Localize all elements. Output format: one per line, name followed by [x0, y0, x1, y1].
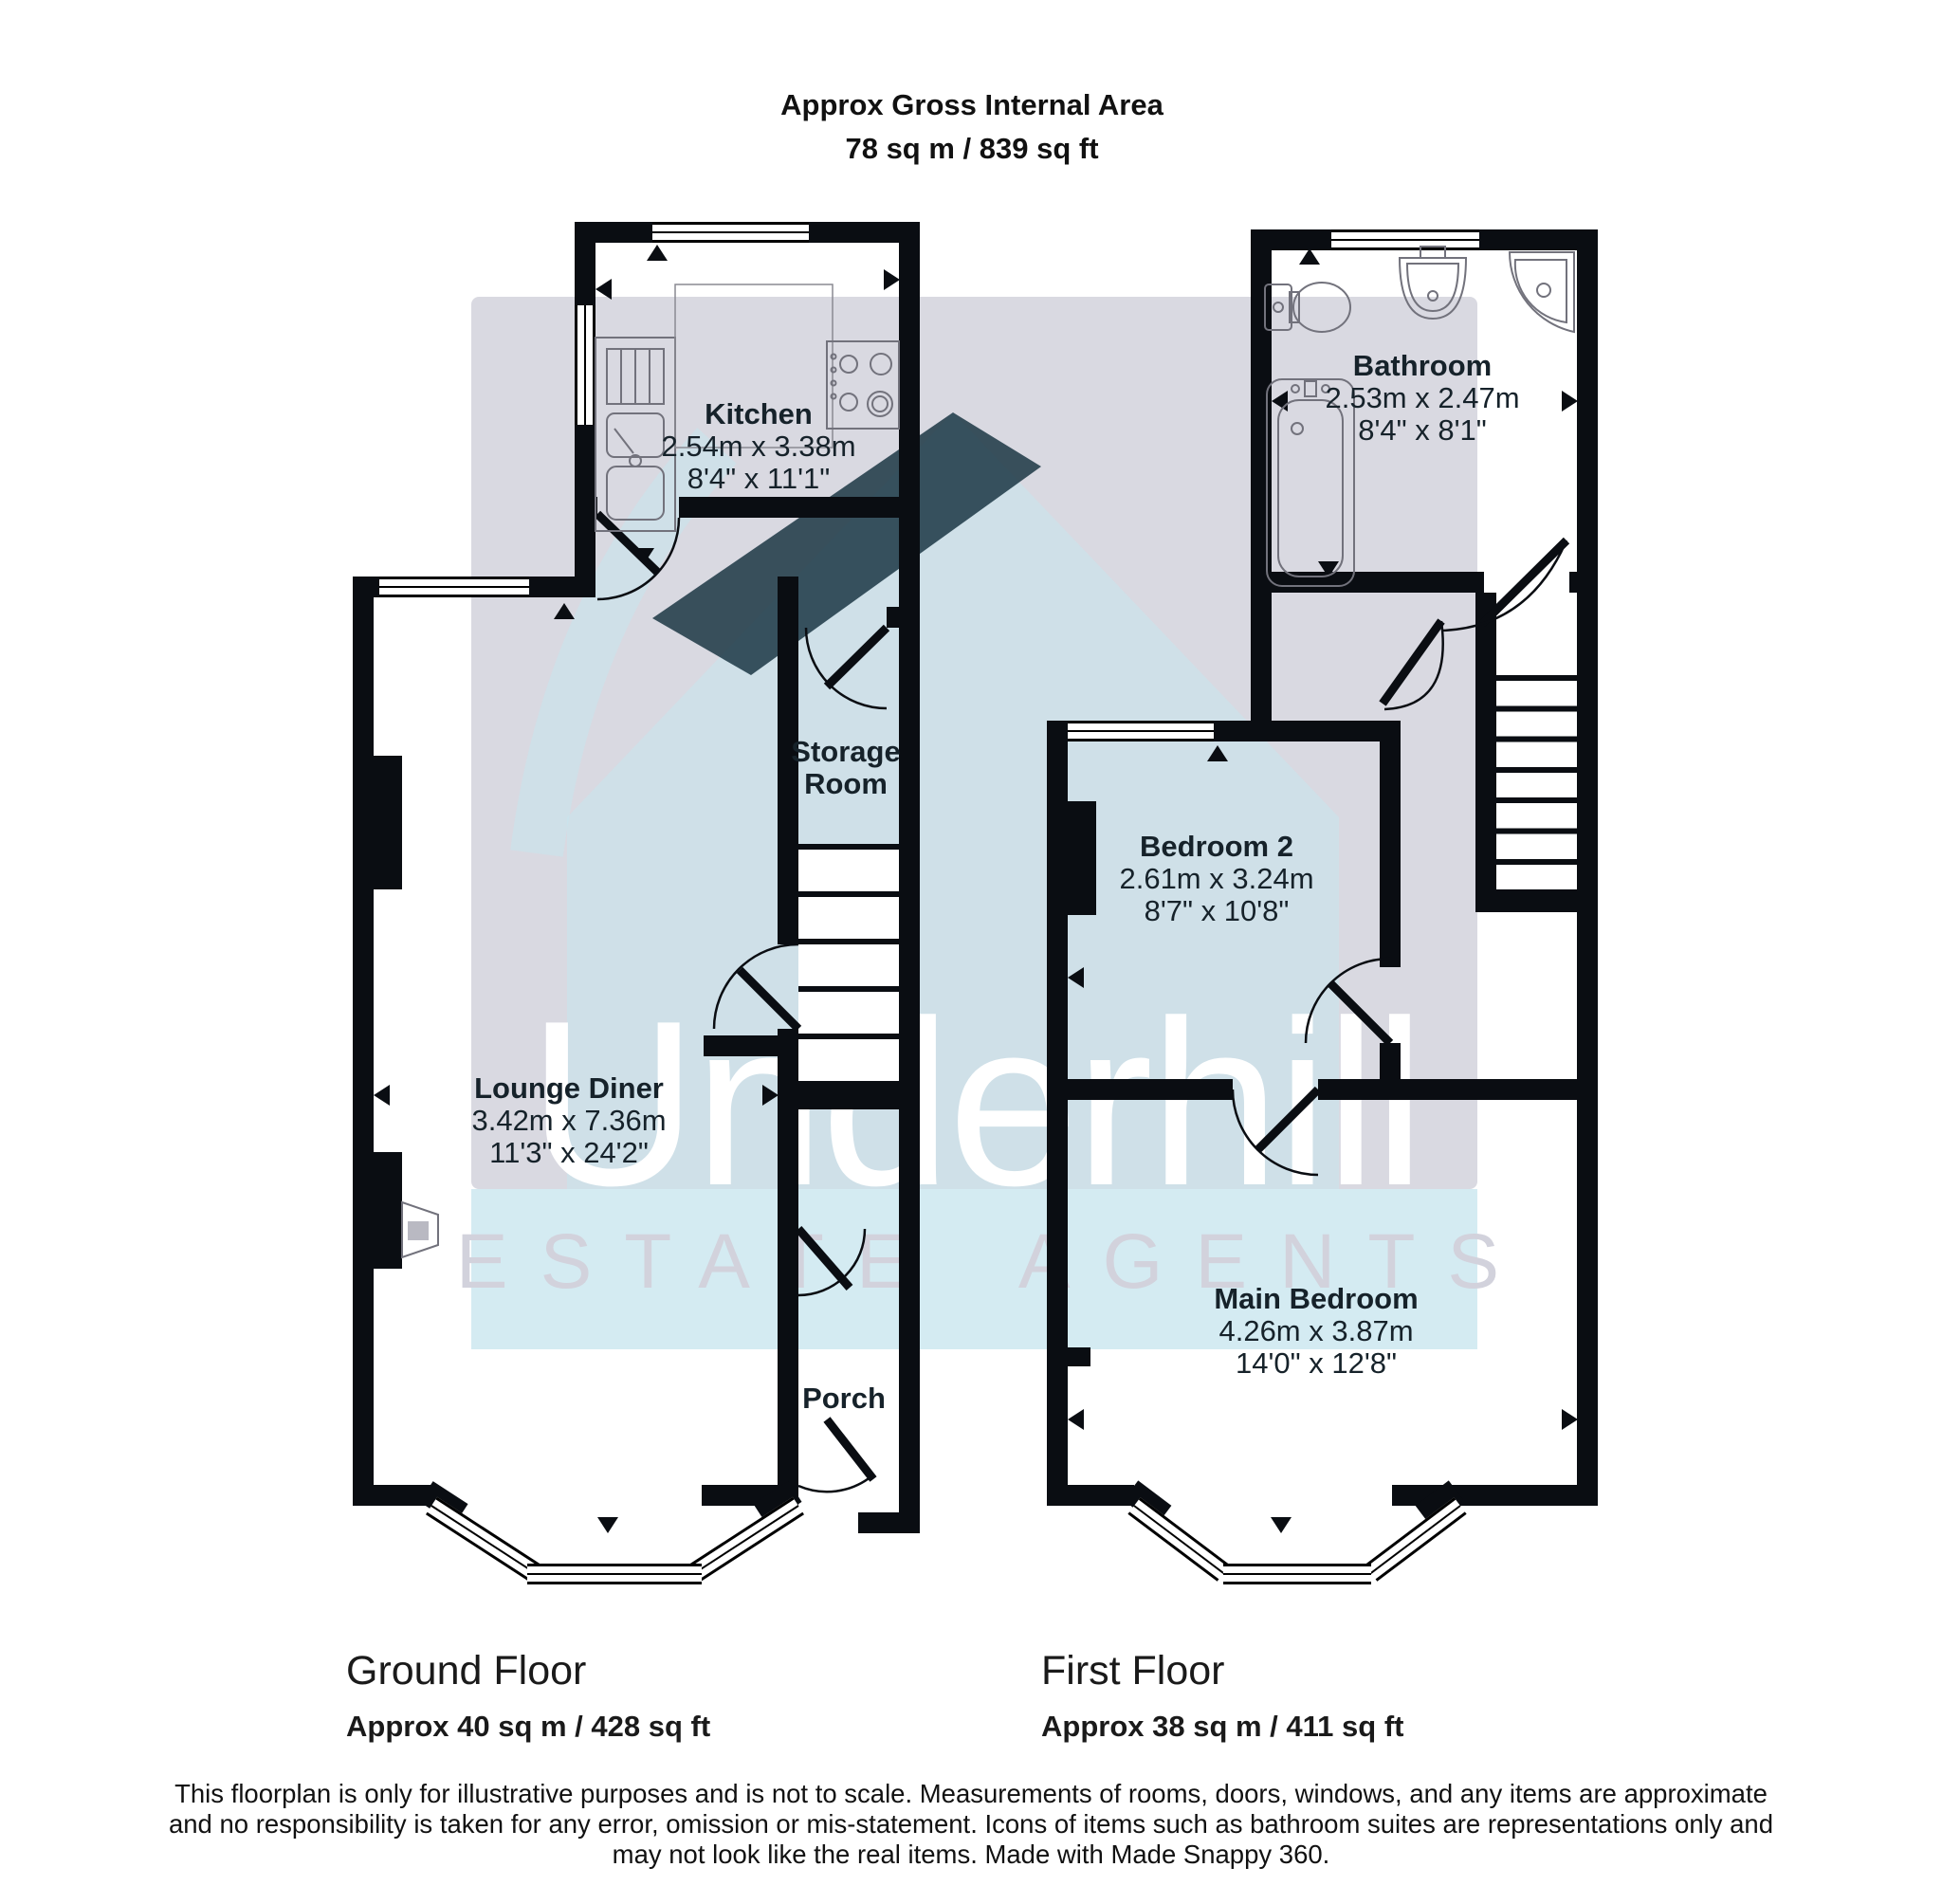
- door-leaf: [1330, 983, 1390, 1043]
- room-size-metric: 2.54m x 3.38m: [661, 430, 855, 463]
- lounge-diner-label: Lounge Diner 3.42m x 7.36m 11'3" x 24'2": [471, 1072, 666, 1169]
- room-size-imperial: 14'0" x 12'8": [1214, 1347, 1418, 1380]
- room-name: Room: [791, 768, 900, 800]
- fireplace-icon: [402, 1202, 438, 1257]
- room-size-imperial: 8'4" x 8'1": [1325, 414, 1519, 447]
- door-leaf: [1258, 1089, 1318, 1149]
- page-title: Approx Gross Internal Area 78 sq m / 839…: [780, 83, 1163, 171]
- door-arcs: [597, 514, 1566, 1492]
- disclaimer-line: and no responsibility is taken for any e…: [169, 1809, 1773, 1840]
- room-name: Bedroom 2: [1119, 831, 1313, 863]
- door-leaf: [827, 628, 887, 687]
- room-size-metric: 2.61m x 3.24m: [1119, 863, 1313, 895]
- main-bedroom-label: Main Bedroom 4.26m x 3.87m 14'0" x 12'8": [1214, 1283, 1418, 1380]
- room-size-imperial: 8'4" x 11'1": [661, 463, 855, 495]
- door-leaf: [597, 514, 658, 573]
- floor-area: Approx 40 sq m / 428 sq ft: [346, 1710, 710, 1744]
- gross-area-title: Approx Gross Internal Area: [780, 83, 1163, 127]
- room-name: Kitchen: [661, 398, 855, 430]
- room-name: Storage: [791, 736, 900, 768]
- disclaimer-line: This floorplan is only for illustrative …: [169, 1779, 1773, 1809]
- door-leaf: [1482, 540, 1566, 624]
- room-size-metric: 3.42m x 7.36m: [471, 1105, 666, 1137]
- room-size-metric: 2.53m x 2.47m: [1325, 382, 1519, 414]
- room-size-imperial: 11'3" x 24'2": [471, 1137, 666, 1169]
- door-leaf: [1383, 621, 1441, 704]
- bathroom-label: Bathroom 2.53m x 2.47m 8'4" x 8'1": [1325, 350, 1519, 447]
- bathroom-sink-icon: [1400, 247, 1466, 319]
- bedroom2-label: Bedroom 2 2.61m x 3.24m 8'7" x 10'8": [1119, 831, 1313, 927]
- toilet-icon: [1265, 283, 1350, 332]
- room-name: Bathroom: [1325, 350, 1519, 382]
- room-name: Main Bedroom: [1214, 1283, 1418, 1315]
- first-floor-caption: First Floor Approx 38 sq m / 411 sq ft: [1041, 1648, 1403, 1744]
- doors-and-fixtures: [0, 0, 1942, 1904]
- corner-shower-icon: [1510, 252, 1574, 332]
- kitchen-label: Kitchen 2.54m x 3.38m 8'4" x 11'1": [661, 398, 855, 495]
- door-leaf: [827, 1419, 873, 1479]
- storage-room-label: Storage Room: [791, 736, 900, 800]
- floorplan-page: Underhill ESTATE AGENTS Approx Gross Int…: [0, 0, 1942, 1904]
- door-leaf: [740, 970, 798, 1029]
- floor-area: Approx 38 sq m / 411 sq ft: [1041, 1710, 1403, 1744]
- ground-floor-caption: Ground Floor Approx 40 sq m / 428 sq ft: [346, 1648, 710, 1744]
- door-arc: [798, 1476, 871, 1492]
- disclaimer-line: may not look like the real items. Made w…: [169, 1840, 1773, 1870]
- room-size-metric: 4.26m x 3.87m: [1214, 1315, 1418, 1347]
- gross-area-value: 78 sq m / 839 sq ft: [780, 127, 1163, 171]
- porch-label: Porch: [802, 1382, 886, 1415]
- room-name: Porch: [802, 1382, 886, 1415]
- floor-name: Ground Floor: [346, 1648, 710, 1694]
- disclaimer: This floorplan is only for illustrative …: [169, 1779, 1773, 1870]
- room-name: Lounge Diner: [471, 1072, 666, 1105]
- floor-name: First Floor: [1041, 1648, 1403, 1694]
- room-size-imperial: 8'7" x 10'8": [1119, 895, 1313, 927]
